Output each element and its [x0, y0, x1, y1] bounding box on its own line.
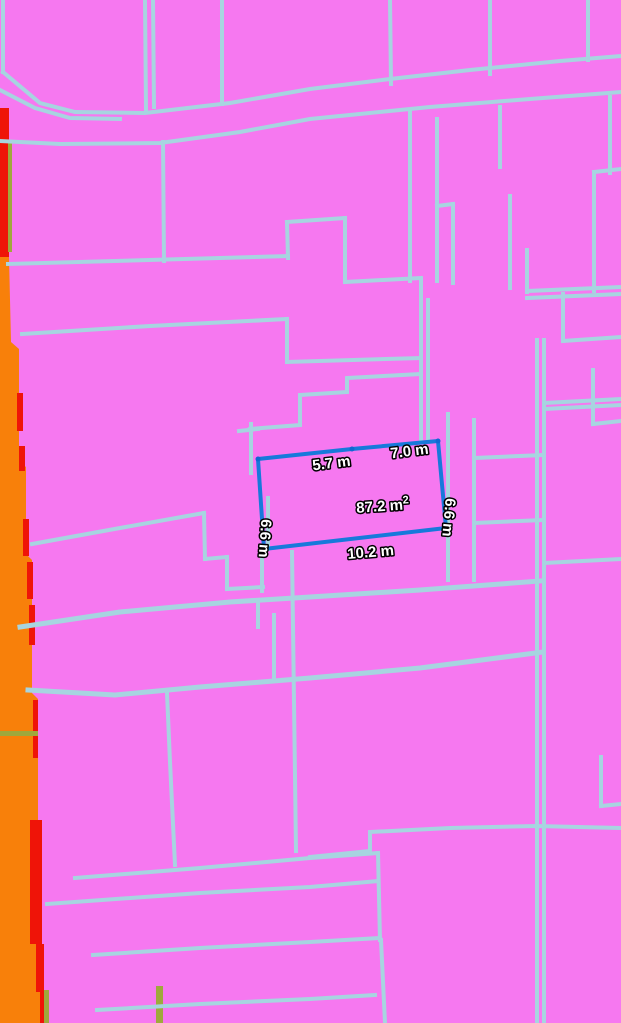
- parcel-line: [227, 587, 263, 589]
- map-canvas[interactable]: 5.7 m7.0 m87.2 m26.6 m6.6 m10.2 m: [0, 0, 621, 1023]
- parcel-line: [601, 804, 621, 806]
- zone-red-strip: [17, 393, 23, 431]
- measurement-label: 6.6 m: [255, 519, 275, 558]
- map-background: [0, 0, 621, 1023]
- parcel-line: [287, 222, 288, 258]
- parcel-line: [437, 204, 453, 206]
- zone-olive-strip: [0, 731, 38, 736]
- cadastral-map: 5.7 m7.0 m87.2 m26.6 m6.6 m10.2 m: [0, 0, 621, 1023]
- measurement-vertex-handle[interactable]: [256, 457, 261, 462]
- zone-red-strip: [40, 990, 44, 1023]
- zone-olive-strip: [8, 140, 12, 252]
- measurement-label: 6.6 m: [438, 498, 458, 538]
- zone-red-strip: [23, 519, 29, 556]
- zone-red-strip: [0, 108, 9, 257]
- parcel-line: [153, 0, 154, 107]
- parcel-line: [163, 142, 164, 261]
- parcel-line: [378, 853, 380, 940]
- zone-red-strip: [27, 562, 33, 599]
- zone-red-strip: [36, 944, 44, 992]
- parcel-line: [205, 557, 227, 559]
- measurement-vertex-handle[interactable]: [350, 447, 355, 452]
- measurement-vertex-handle[interactable]: [436, 439, 441, 444]
- parcel-line: [204, 513, 205, 559]
- parcel-line: [390, 0, 391, 84]
- zone-red-strip: [30, 820, 42, 944]
- parcel-line: [145, 0, 146, 110]
- zone-red-strip: [33, 700, 38, 758]
- parcel-line: [239, 429, 258, 431]
- zone-red-strip: [19, 446, 25, 471]
- zone-olive-strip: [44, 990, 49, 1023]
